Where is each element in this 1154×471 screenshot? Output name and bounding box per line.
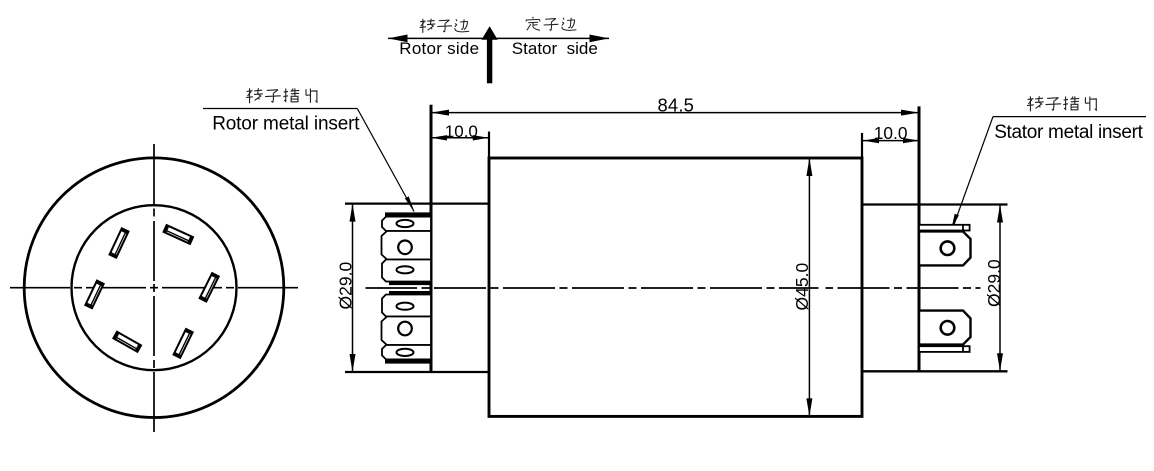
svg-text:10.0: 10.0 <box>874 123 908 143</box>
svg-text:Stator side: Stator side <box>512 39 598 58</box>
svg-text:10.0: 10.0 <box>445 122 478 141</box>
svg-text:Ø29.0: Ø29.0 <box>984 259 1004 307</box>
svg-text:Ø29.0: Ø29.0 <box>335 262 355 310</box>
svg-text:Rotor side: Rotor side <box>399 39 479 58</box>
svg-text:Stator metal insert: Stator metal insert <box>994 122 1143 143</box>
svg-text:84.5: 84.5 <box>658 95 695 116</box>
svg-text:Ø45.0: Ø45.0 <box>792 263 812 311</box>
svg-text:Rotor metal insert: Rotor metal insert <box>212 114 360 135</box>
